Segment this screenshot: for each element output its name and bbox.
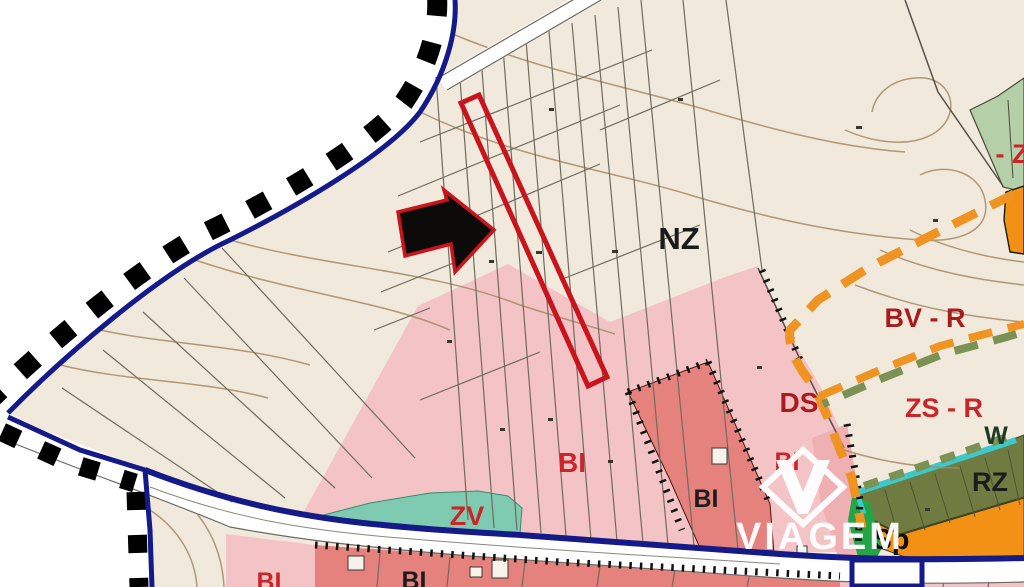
road-blue-jog <box>852 560 922 586</box>
zone-label-bi-dark: BI <box>694 485 719 513</box>
zone-label-rz: RZ <box>972 467 1008 497</box>
zone-label-zv: ZV <box>450 501 485 531</box>
zone-label-zs-r: ZS - R <box>905 393 983 423</box>
zone-label-z: - Z <box>996 139 1024 169</box>
viagem-watermark-text: VIAGEM <box>736 516 904 558</box>
zone-label-w: W <box>984 422 1008 450</box>
municipal-boundary-dashes-left <box>136 492 139 587</box>
zone-label-bi-center: BI <box>558 447 586 478</box>
zone-label-bi-bottom-left: BI <box>257 568 282 587</box>
zone-label-bv-r: BV - R <box>885 303 966 333</box>
zoning-map-canvas: NZ - Z BV - R ZS - R DS BI BI BI ZV W RZ… <box>0 0 1024 587</box>
zone-label-ds: DS <box>780 387 819 418</box>
zone-label-nz: NZ <box>658 221 699 256</box>
zone-label-bi-bottom-mid: BI <box>402 567 427 587</box>
zoning-map: NZ - Z BV - R ZS - R DS BI BI BI ZV W RZ… <box>0 0 1024 587</box>
